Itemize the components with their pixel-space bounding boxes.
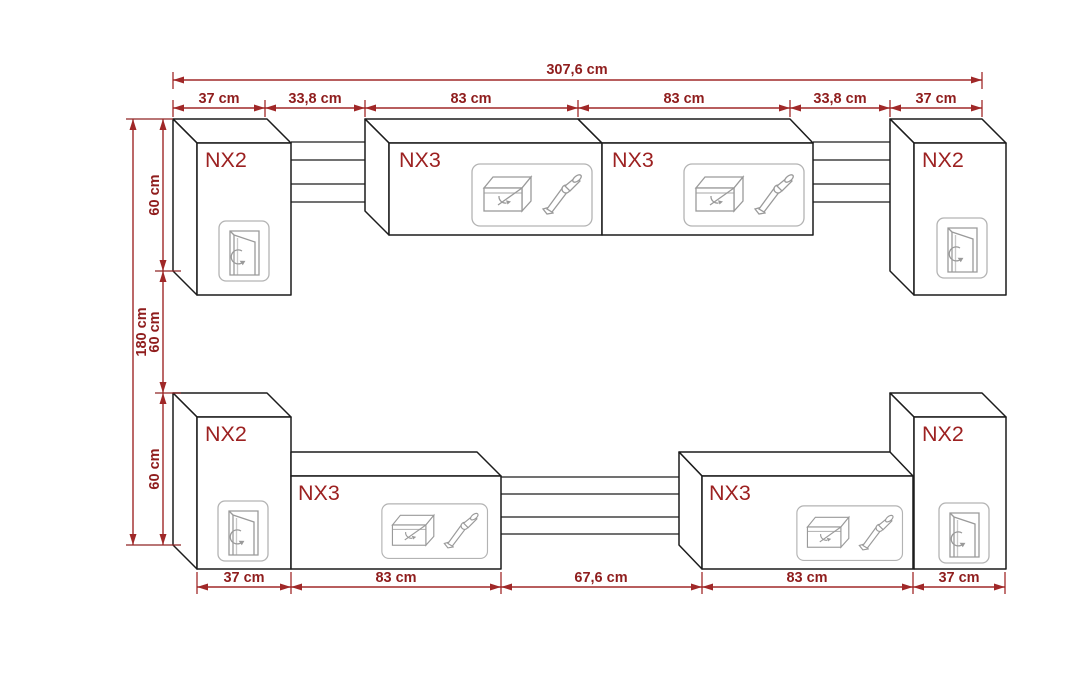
cabinet-label: NX2 — [205, 148, 247, 172]
cabinet-top-face — [578, 119, 813, 143]
flap-door-stay-arm-icon — [797, 506, 903, 561]
cabinet-nx2-top-left: NX2 — [173, 119, 291, 295]
flap-door-stay-arm-icon — [382, 504, 488, 559]
dimension-top-segments: 37 cm 33,8 cm 83 cm 83 cm 33,8 cm 37 cm — [173, 91, 982, 117]
shelf — [501, 477, 697, 494]
cabinet-top-face — [365, 119, 602, 143]
dimension-label: 60 cm — [147, 311, 163, 352]
shelves-bottom-gap — [501, 477, 697, 534]
cabinet-label: NX3 — [399, 148, 441, 172]
cabinet-label: NX2 — [922, 422, 964, 446]
cabinet-label: NX3 — [709, 481, 751, 505]
dimension-label: 37 cm — [915, 91, 956, 107]
dimension-label: 33,8 cm — [288, 91, 341, 107]
dimension-label: 83 cm — [663, 91, 704, 107]
hinged-door-icon — [939, 503, 989, 563]
dimension-label: 67,6 cm — [574, 570, 627, 586]
cabinet-nx2-bottom-left: NX2 — [173, 393, 291, 569]
dimension-label: 37 cm — [223, 570, 264, 586]
dimension-bottom-segments: 37 cm 83 cm 67,6 cm 83 cm 37 cm — [197, 570, 1005, 594]
hinged-door-icon — [219, 221, 269, 281]
shelf — [501, 517, 697, 534]
flap-door-stay-arm-icon — [472, 164, 592, 226]
cabinet-nx3-bottom-mid-right: NX3 — [679, 452, 913, 569]
dimension-label: 37 cm — [938, 570, 979, 586]
dimension-label: 37 cm — [198, 91, 239, 107]
dimension-label: 83 cm — [786, 570, 827, 586]
cabinet-side-face — [173, 393, 197, 569]
cabinet-nx3-top-mid-right: NX3 — [578, 119, 813, 235]
hinged-door-icon — [218, 501, 268, 561]
cabinet-top-face — [679, 452, 913, 476]
dimension-label: 83 cm — [375, 570, 416, 586]
cabinet-nx2-top-right: NX2 — [890, 119, 1006, 295]
hinged-door-icon — [937, 218, 987, 278]
dimension-top-total: 307,6 cm — [173, 62, 982, 89]
cabinet-label: NX2 — [205, 422, 247, 446]
furniture-dimension-diagram: NX2 NX3 NX3 NX2 NX2 — [0, 0, 1090, 697]
cabinet-side-face — [890, 119, 914, 295]
cabinet-nx3-top-mid-left: NX3 — [365, 119, 602, 235]
dimension-label: 60 cm — [147, 448, 163, 489]
diagram-svg: NX2 NX3 NX3 NX2 NX2 — [0, 0, 1090, 697]
dimension-label-total-width: 307,6 cm — [546, 62, 607, 78]
cabinet-nx3-bottom-mid-left: NX3 — [291, 452, 501, 569]
cabinet-top-face — [291, 452, 501, 476]
cabinet-label: NX3 — [612, 148, 654, 172]
flap-door-stay-arm-icon — [684, 164, 804, 226]
cabinet-label: NX3 — [298, 481, 340, 505]
cabinet-side-face — [173, 119, 197, 295]
dimension-label: 60 cm — [147, 174, 163, 215]
dimension-label: 33,8 cm — [813, 91, 866, 107]
cabinet-label: NX2 — [922, 148, 964, 172]
dimension-label: 83 cm — [450, 91, 491, 107]
